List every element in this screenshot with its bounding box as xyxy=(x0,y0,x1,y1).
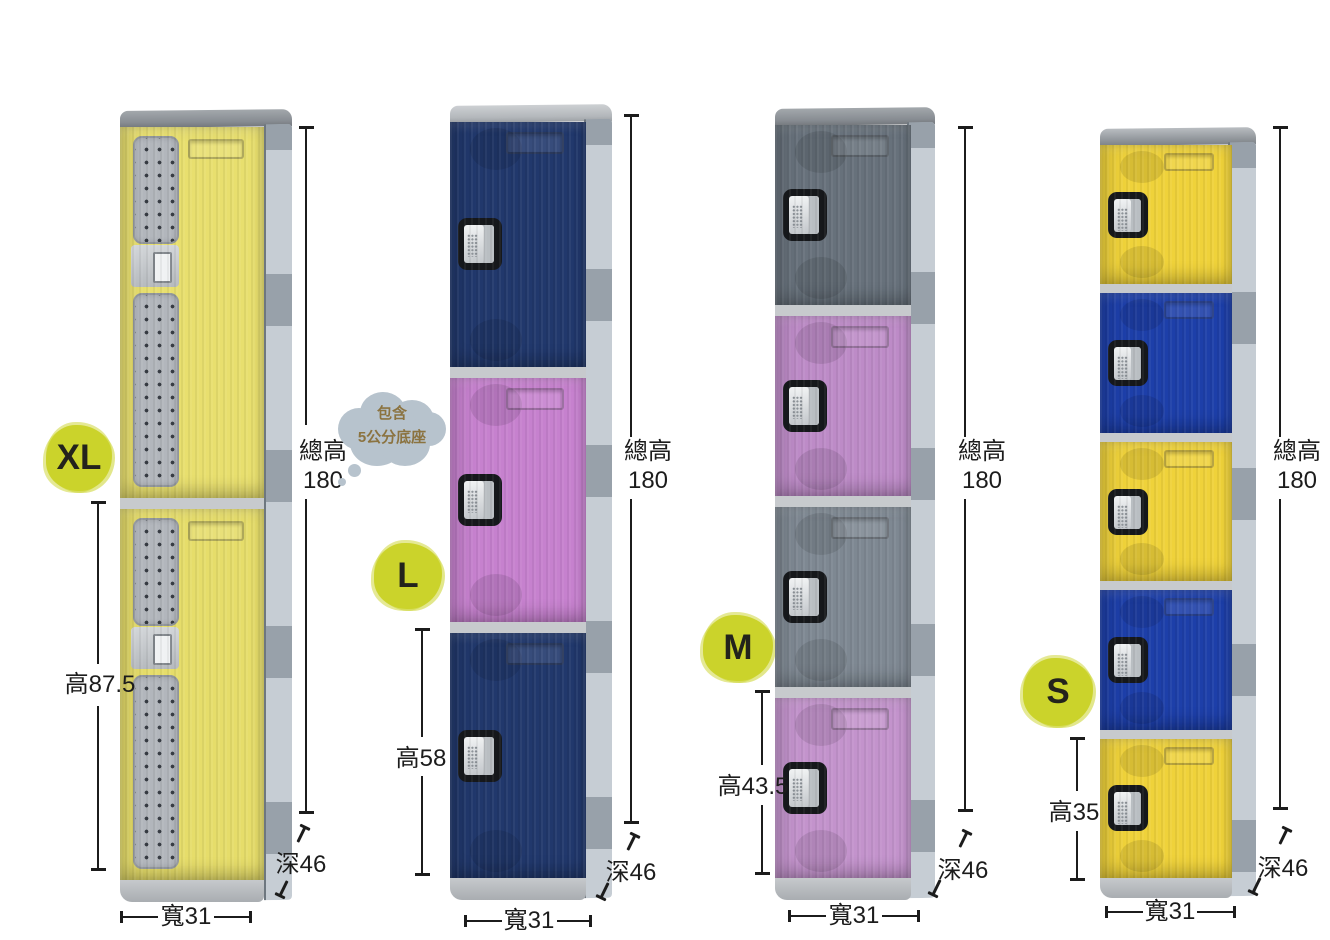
locker-side-panel xyxy=(264,124,292,900)
dim-line xyxy=(305,499,307,812)
total-height-value: 180 xyxy=(1266,466,1328,495)
dim-line xyxy=(97,706,99,869)
total-height-label: 總高 xyxy=(1266,437,1328,466)
bubble-tail-dot xyxy=(348,464,361,477)
lock-latch xyxy=(1114,792,1141,825)
size-badge-l: L xyxy=(374,543,442,609)
dim-tick xyxy=(626,834,636,851)
locker-front xyxy=(120,127,264,880)
dim-line xyxy=(123,916,158,918)
locker-base xyxy=(450,878,586,900)
locker-door xyxy=(1100,581,1232,729)
locker-front xyxy=(450,122,586,878)
lock-latch xyxy=(464,737,494,775)
lock-latch xyxy=(464,225,494,263)
locker-s xyxy=(1100,128,1256,898)
dim-tick xyxy=(415,873,430,876)
locker-side-panel xyxy=(907,122,935,898)
bubble-line2: 5公分底座 xyxy=(338,426,446,450)
dim-tick xyxy=(249,911,252,923)
size-badge-xl: XL xyxy=(46,425,112,491)
bubble-line1: 包含 xyxy=(338,402,446,426)
vent-strip xyxy=(133,136,179,244)
dim-line xyxy=(1279,129,1281,437)
dim-tick xyxy=(958,809,973,812)
vent-strip xyxy=(133,293,179,487)
dim-label: 高43.5 xyxy=(705,772,801,801)
hinge-bump xyxy=(795,639,847,681)
lock-latch xyxy=(789,196,819,234)
dim-tick xyxy=(91,868,106,871)
name-card-slot xyxy=(506,132,564,154)
hinge-bump xyxy=(470,574,522,616)
lock-latch xyxy=(1114,644,1141,677)
dim-label: 總高 180 xyxy=(617,437,679,496)
hinge-bump xyxy=(1120,840,1164,872)
hinge-bump xyxy=(1120,151,1164,183)
dim-label: 寬31 xyxy=(826,901,882,930)
dim-line xyxy=(1279,499,1281,808)
lock-latch xyxy=(1114,496,1141,529)
dim-tick xyxy=(1233,906,1236,918)
name-card-slot xyxy=(1164,450,1214,468)
dim-line xyxy=(421,776,423,874)
dim-label: 高58 xyxy=(385,744,457,773)
hinge-bump xyxy=(1120,692,1164,724)
total-height-label: 總高 xyxy=(951,437,1013,466)
locker-base xyxy=(120,880,264,902)
hinge-bump xyxy=(1120,246,1164,278)
name-card-slot xyxy=(188,521,244,541)
dim-line xyxy=(1076,831,1078,879)
size-badge-m: M xyxy=(703,615,773,681)
name-card-slot xyxy=(1164,301,1214,319)
dim-tick xyxy=(1278,828,1288,845)
locker-front xyxy=(775,125,911,878)
name-card-slot xyxy=(1164,598,1214,616)
locker-base xyxy=(1100,878,1232,898)
locker-xl xyxy=(120,110,292,902)
dim-line xyxy=(214,916,249,918)
lock xyxy=(1108,489,1148,535)
dim-line xyxy=(630,117,632,437)
door-latch xyxy=(131,627,179,669)
dim-label: 總高 180 xyxy=(951,437,1013,496)
dim-label: 寬31 xyxy=(158,902,214,931)
hinge-bump xyxy=(795,257,847,299)
name-card-slot xyxy=(188,139,244,159)
dim-line xyxy=(761,805,763,873)
lock xyxy=(783,571,827,623)
lock xyxy=(1108,637,1148,683)
hinge-bump xyxy=(1120,745,1164,777)
dim-line xyxy=(97,504,99,664)
dim-tick xyxy=(1070,878,1085,881)
lock-latch xyxy=(789,578,819,616)
locker-door xyxy=(450,367,586,623)
dim-line xyxy=(1197,911,1233,913)
locker-door xyxy=(775,305,911,496)
name-card-slot xyxy=(831,326,889,348)
lock-latch xyxy=(464,481,494,519)
name-card-slot xyxy=(831,135,889,157)
hinge-bump xyxy=(470,319,522,361)
note-bubble: 包含 5公分底座 xyxy=(338,392,448,487)
dim-tick xyxy=(917,910,920,922)
dim-tick xyxy=(1273,807,1288,810)
dim-line xyxy=(964,129,966,437)
locker-door xyxy=(450,122,586,367)
locker-door xyxy=(1100,284,1232,432)
dim-line xyxy=(305,129,307,425)
locker-door xyxy=(775,125,911,305)
locker-base xyxy=(775,878,911,900)
hinge-bump xyxy=(470,830,522,872)
lock xyxy=(1108,192,1148,238)
lock xyxy=(458,474,502,526)
dim-tick xyxy=(958,831,968,848)
dim-label: 寬31 xyxy=(502,906,556,935)
locker-side-panel xyxy=(1228,142,1256,896)
locker-door xyxy=(1100,145,1232,284)
dim-label: 深46 xyxy=(268,850,334,879)
locker-door xyxy=(120,127,264,498)
lock-latch xyxy=(789,387,819,425)
name-card-slot xyxy=(506,388,564,410)
vent-strip xyxy=(133,518,179,626)
lock xyxy=(1108,785,1148,831)
hinge-bump xyxy=(1120,448,1164,480)
dim-label: 高87.5 xyxy=(55,670,145,699)
size-badge-s: S xyxy=(1023,658,1093,726)
dim-line xyxy=(964,499,966,810)
total-height-value: 180 xyxy=(617,466,679,495)
dim-tick xyxy=(299,811,314,814)
dim-label: 高35 xyxy=(1038,798,1110,827)
locker-door xyxy=(1100,730,1232,878)
name-card-slot xyxy=(831,708,889,730)
dim-line xyxy=(791,915,826,917)
lock-latch xyxy=(1114,199,1141,232)
name-card-slot xyxy=(1164,747,1214,765)
dim-line xyxy=(1108,911,1143,913)
locker-l xyxy=(450,105,612,900)
lock xyxy=(458,218,502,270)
dim-tick xyxy=(755,872,770,875)
total-height-label: 總高 xyxy=(617,437,679,466)
dim-label: 總高 180 xyxy=(1266,437,1328,496)
locker-door xyxy=(1100,433,1232,581)
lock xyxy=(1108,340,1148,386)
dim-tick xyxy=(624,821,639,824)
door-latch xyxy=(131,245,179,287)
locker-door xyxy=(450,622,586,878)
dim-line xyxy=(882,915,917,917)
hinge-bump xyxy=(795,448,847,490)
lock xyxy=(783,189,827,241)
locker-size-diagram: XL 總高 180 xyxy=(0,0,1330,940)
name-card-slot xyxy=(506,643,564,665)
locker-door xyxy=(775,496,911,687)
dim-line xyxy=(467,920,502,922)
hinge-bump xyxy=(1120,299,1164,331)
dim-label: 寬31 xyxy=(1143,897,1197,926)
hinge-bump xyxy=(1120,596,1164,628)
dim-tick xyxy=(296,826,306,843)
dim-line xyxy=(421,631,423,737)
dim-line xyxy=(1076,740,1078,791)
dim-line xyxy=(630,499,632,822)
lock xyxy=(458,730,502,782)
vent-strip xyxy=(133,675,179,869)
locker-front xyxy=(1100,145,1232,878)
bubble-tail-dot xyxy=(338,478,346,486)
dim-line xyxy=(557,920,589,922)
hinge-bump xyxy=(1120,543,1164,575)
name-card-slot xyxy=(831,517,889,539)
lock-latch xyxy=(1114,347,1141,380)
dim-tick xyxy=(589,915,592,927)
name-card-slot xyxy=(1164,153,1214,171)
dim-line xyxy=(761,693,763,765)
bubble-text: 包含 5公分底座 xyxy=(338,402,446,450)
locker-side-panel xyxy=(584,119,612,898)
lock xyxy=(783,380,827,432)
total-height-value: 180 xyxy=(951,466,1013,495)
hinge-bump xyxy=(1120,395,1164,427)
hinge-bump xyxy=(795,830,847,872)
